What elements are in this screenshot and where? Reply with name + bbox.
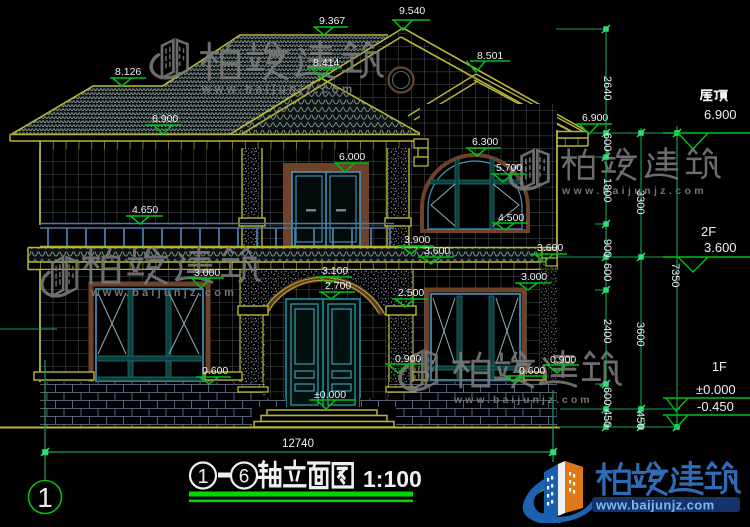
svg-text:6.900: 6.900 [704, 107, 737, 122]
svg-text:900: 900 [601, 239, 613, 257]
svg-text:0.600: 0.600 [519, 365, 545, 377]
svg-text:±0.000: ±0.000 [314, 389, 346, 401]
svg-text:6.900: 6.900 [152, 113, 178, 125]
svg-text:www.baijunjz.com: www.baijunjz.com [90, 287, 237, 299]
svg-text:8.501: 8.501 [477, 50, 503, 62]
svg-text:0.600: 0.600 [202, 365, 228, 377]
svg-text:1F: 1F [712, 360, 727, 374]
svg-text:1:100: 1:100 [363, 466, 422, 492]
svg-text:www.baijunjz.com: www.baijunjz.com [453, 394, 593, 406]
svg-text:±0.000: ±0.000 [696, 382, 736, 397]
svg-text:9.540: 9.540 [399, 5, 425, 17]
svg-text:600: 600 [601, 263, 613, 281]
svg-text:12740: 12740 [282, 438, 314, 450]
svg-text:450: 450 [634, 411, 646, 429]
svg-text:www.baijunjz.com: www.baijunjz.com [595, 498, 715, 513]
svg-text:7350: 7350 [669, 263, 681, 287]
svg-text:3600: 3600 [634, 322, 646, 346]
svg-text:3.600: 3.600 [424, 245, 450, 257]
svg-text:6.300: 6.300 [472, 136, 498, 148]
svg-text:6: 6 [239, 467, 250, 488]
svg-text:4.650: 4.650 [132, 204, 158, 216]
svg-text:3.000: 3.000 [194, 267, 220, 279]
svg-text:2.700: 2.700 [325, 280, 351, 292]
svg-text:2640: 2640 [601, 76, 613, 100]
svg-text:6.900: 6.900 [582, 112, 608, 124]
svg-text:600: 600 [601, 133, 613, 151]
svg-text:-0.450: -0.450 [697, 399, 734, 414]
svg-text:0.900: 0.900 [550, 354, 576, 366]
svg-text:2400: 2400 [601, 319, 613, 343]
svg-text:450: 450 [601, 409, 613, 427]
svg-text:www.baijunjz.com: www.baijunjz.com [201, 84, 356, 96]
svg-text:2.500: 2.500 [398, 287, 424, 299]
svg-text:8.126: 8.126 [115, 66, 141, 78]
svg-text:3.600: 3.600 [537, 242, 563, 254]
svg-text:5.700: 5.700 [496, 162, 522, 174]
svg-text:1: 1 [197, 466, 208, 488]
svg-text:1: 1 [37, 482, 53, 513]
svg-text:0.900: 0.900 [395, 353, 421, 365]
svg-text:4.500: 4.500 [498, 212, 524, 224]
svg-text:3300: 3300 [634, 190, 646, 214]
svg-text:3.600: 3.600 [704, 240, 737, 255]
svg-text:2F: 2F [701, 224, 716, 239]
svg-text:9.367: 9.367 [319, 15, 345, 27]
svg-text:6.000: 6.000 [339, 151, 365, 163]
svg-text:600: 600 [601, 387, 613, 405]
svg-text:1800: 1800 [601, 178, 613, 202]
svg-text:3.000: 3.000 [521, 271, 547, 283]
svg-text:8.414: 8.414 [313, 57, 339, 69]
svg-text:3.100: 3.100 [322, 265, 348, 277]
